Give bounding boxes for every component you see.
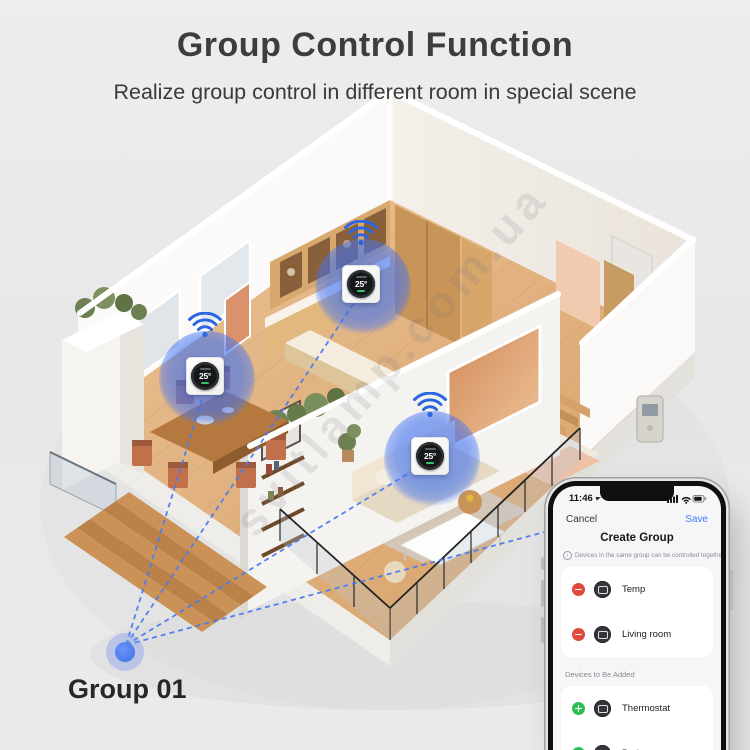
section-label: Devices to Be Added [565, 670, 709, 679]
power-button [730, 570, 733, 610]
save-button[interactable]: Save [685, 514, 708, 525]
thermostat-panel: 25° [186, 357, 224, 395]
info-text: Devices in the same group can be control… [575, 552, 721, 559]
wifi-icon [412, 392, 448, 418]
device-name: Living room [622, 629, 671, 640]
device-row[interactable]: Temp [561, 567, 713, 612]
pouf [384, 561, 406, 583]
group-label: Group 01 [68, 674, 187, 705]
phone-notch [600, 486, 674, 501]
header: Group Control Function Realize group con… [0, 26, 750, 105]
thermostat-panel: 25° [342, 265, 380, 303]
wifi-icon [343, 220, 379, 246]
temperature-reading: 25° [355, 280, 367, 289]
volume-down-button [541, 617, 544, 643]
screen-title: Create Group [553, 532, 721, 544]
thermostat-panel: 25° [411, 437, 449, 475]
device-row[interactable]: Thermostat [561, 686, 713, 731]
temperature-reading: 25° [424, 452, 436, 461]
device-name: Thermostat [622, 703, 670, 714]
remove-device-icon[interactable] [572, 628, 585, 641]
page-subtitle: Realize group control in different room … [0, 80, 750, 105]
group-devices-card: Temp Living room [561, 567, 713, 657]
thermostat-device-icon [594, 700, 611, 717]
thermostat-device-icon [594, 581, 611, 598]
info-icon: i [563, 551, 572, 560]
thermostat-device-icon [594, 745, 611, 750]
phone-mockup: 11:46 [548, 481, 726, 750]
info-note: i Devices in the same group can be contr… [563, 551, 713, 560]
device-name: Temp [622, 584, 645, 595]
page: 25° 25° 25° Group 01 svitlamp.com.ua Gro… [0, 0, 750, 750]
devices-to-add-card: Thermostat Bed room [561, 686, 713, 750]
thermostat-kitchen: 25° [306, 206, 416, 362]
volume-up-button [541, 580, 544, 607]
cancel-button[interactable]: Cancel [566, 514, 597, 525]
intercom-device [637, 396, 663, 442]
group-dot [115, 642, 135, 662]
device-row[interactable]: Living room [561, 612, 713, 657]
nav-bar: Cancel Save [553, 514, 721, 525]
mute-switch [541, 557, 544, 570]
device-row[interactable]: Bed room [561, 731, 713, 750]
thermostat-device-icon [594, 626, 611, 643]
page-title: Group Control Function [0, 26, 750, 65]
thermostat-living-room: 25° [375, 378, 485, 534]
temperature-reading: 25° [199, 372, 211, 381]
phone-screen: 11:46 [553, 486, 721, 750]
thermostat-dining-room: 25° [150, 298, 260, 454]
add-device-icon[interactable] [572, 702, 585, 715]
wifi-icon [187, 312, 223, 338]
remove-device-icon[interactable] [572, 583, 585, 596]
status-time: 11:46 [569, 493, 593, 504]
